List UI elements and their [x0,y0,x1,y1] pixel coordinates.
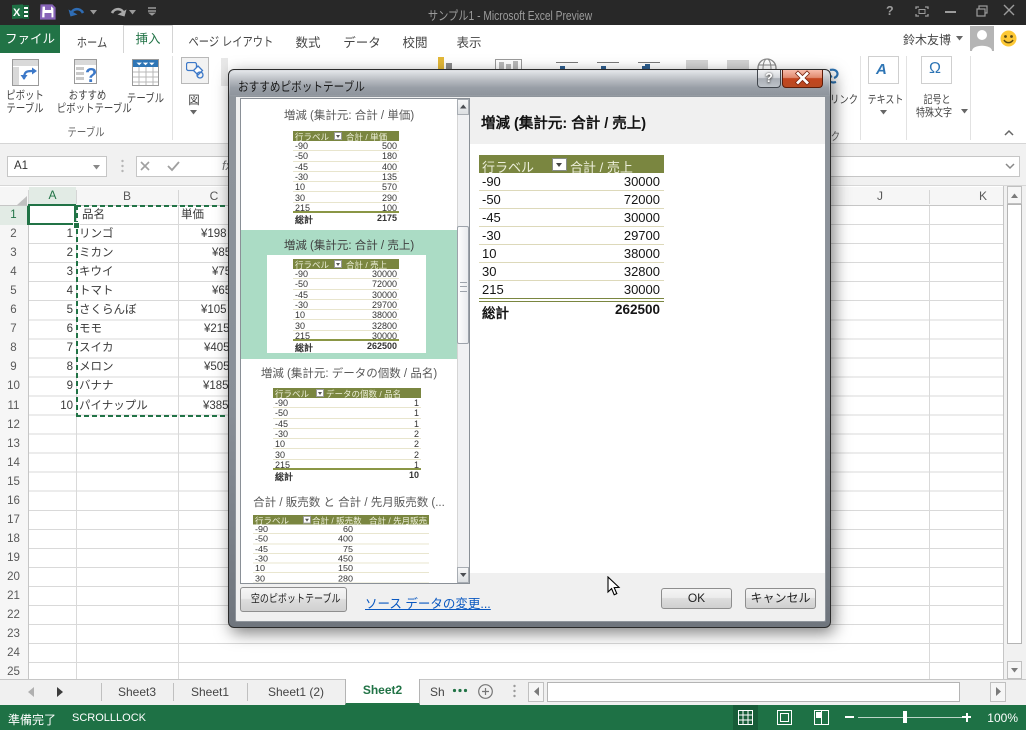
svg-text:?: ? [85,65,97,86]
svg-text:X: X [13,7,21,19]
